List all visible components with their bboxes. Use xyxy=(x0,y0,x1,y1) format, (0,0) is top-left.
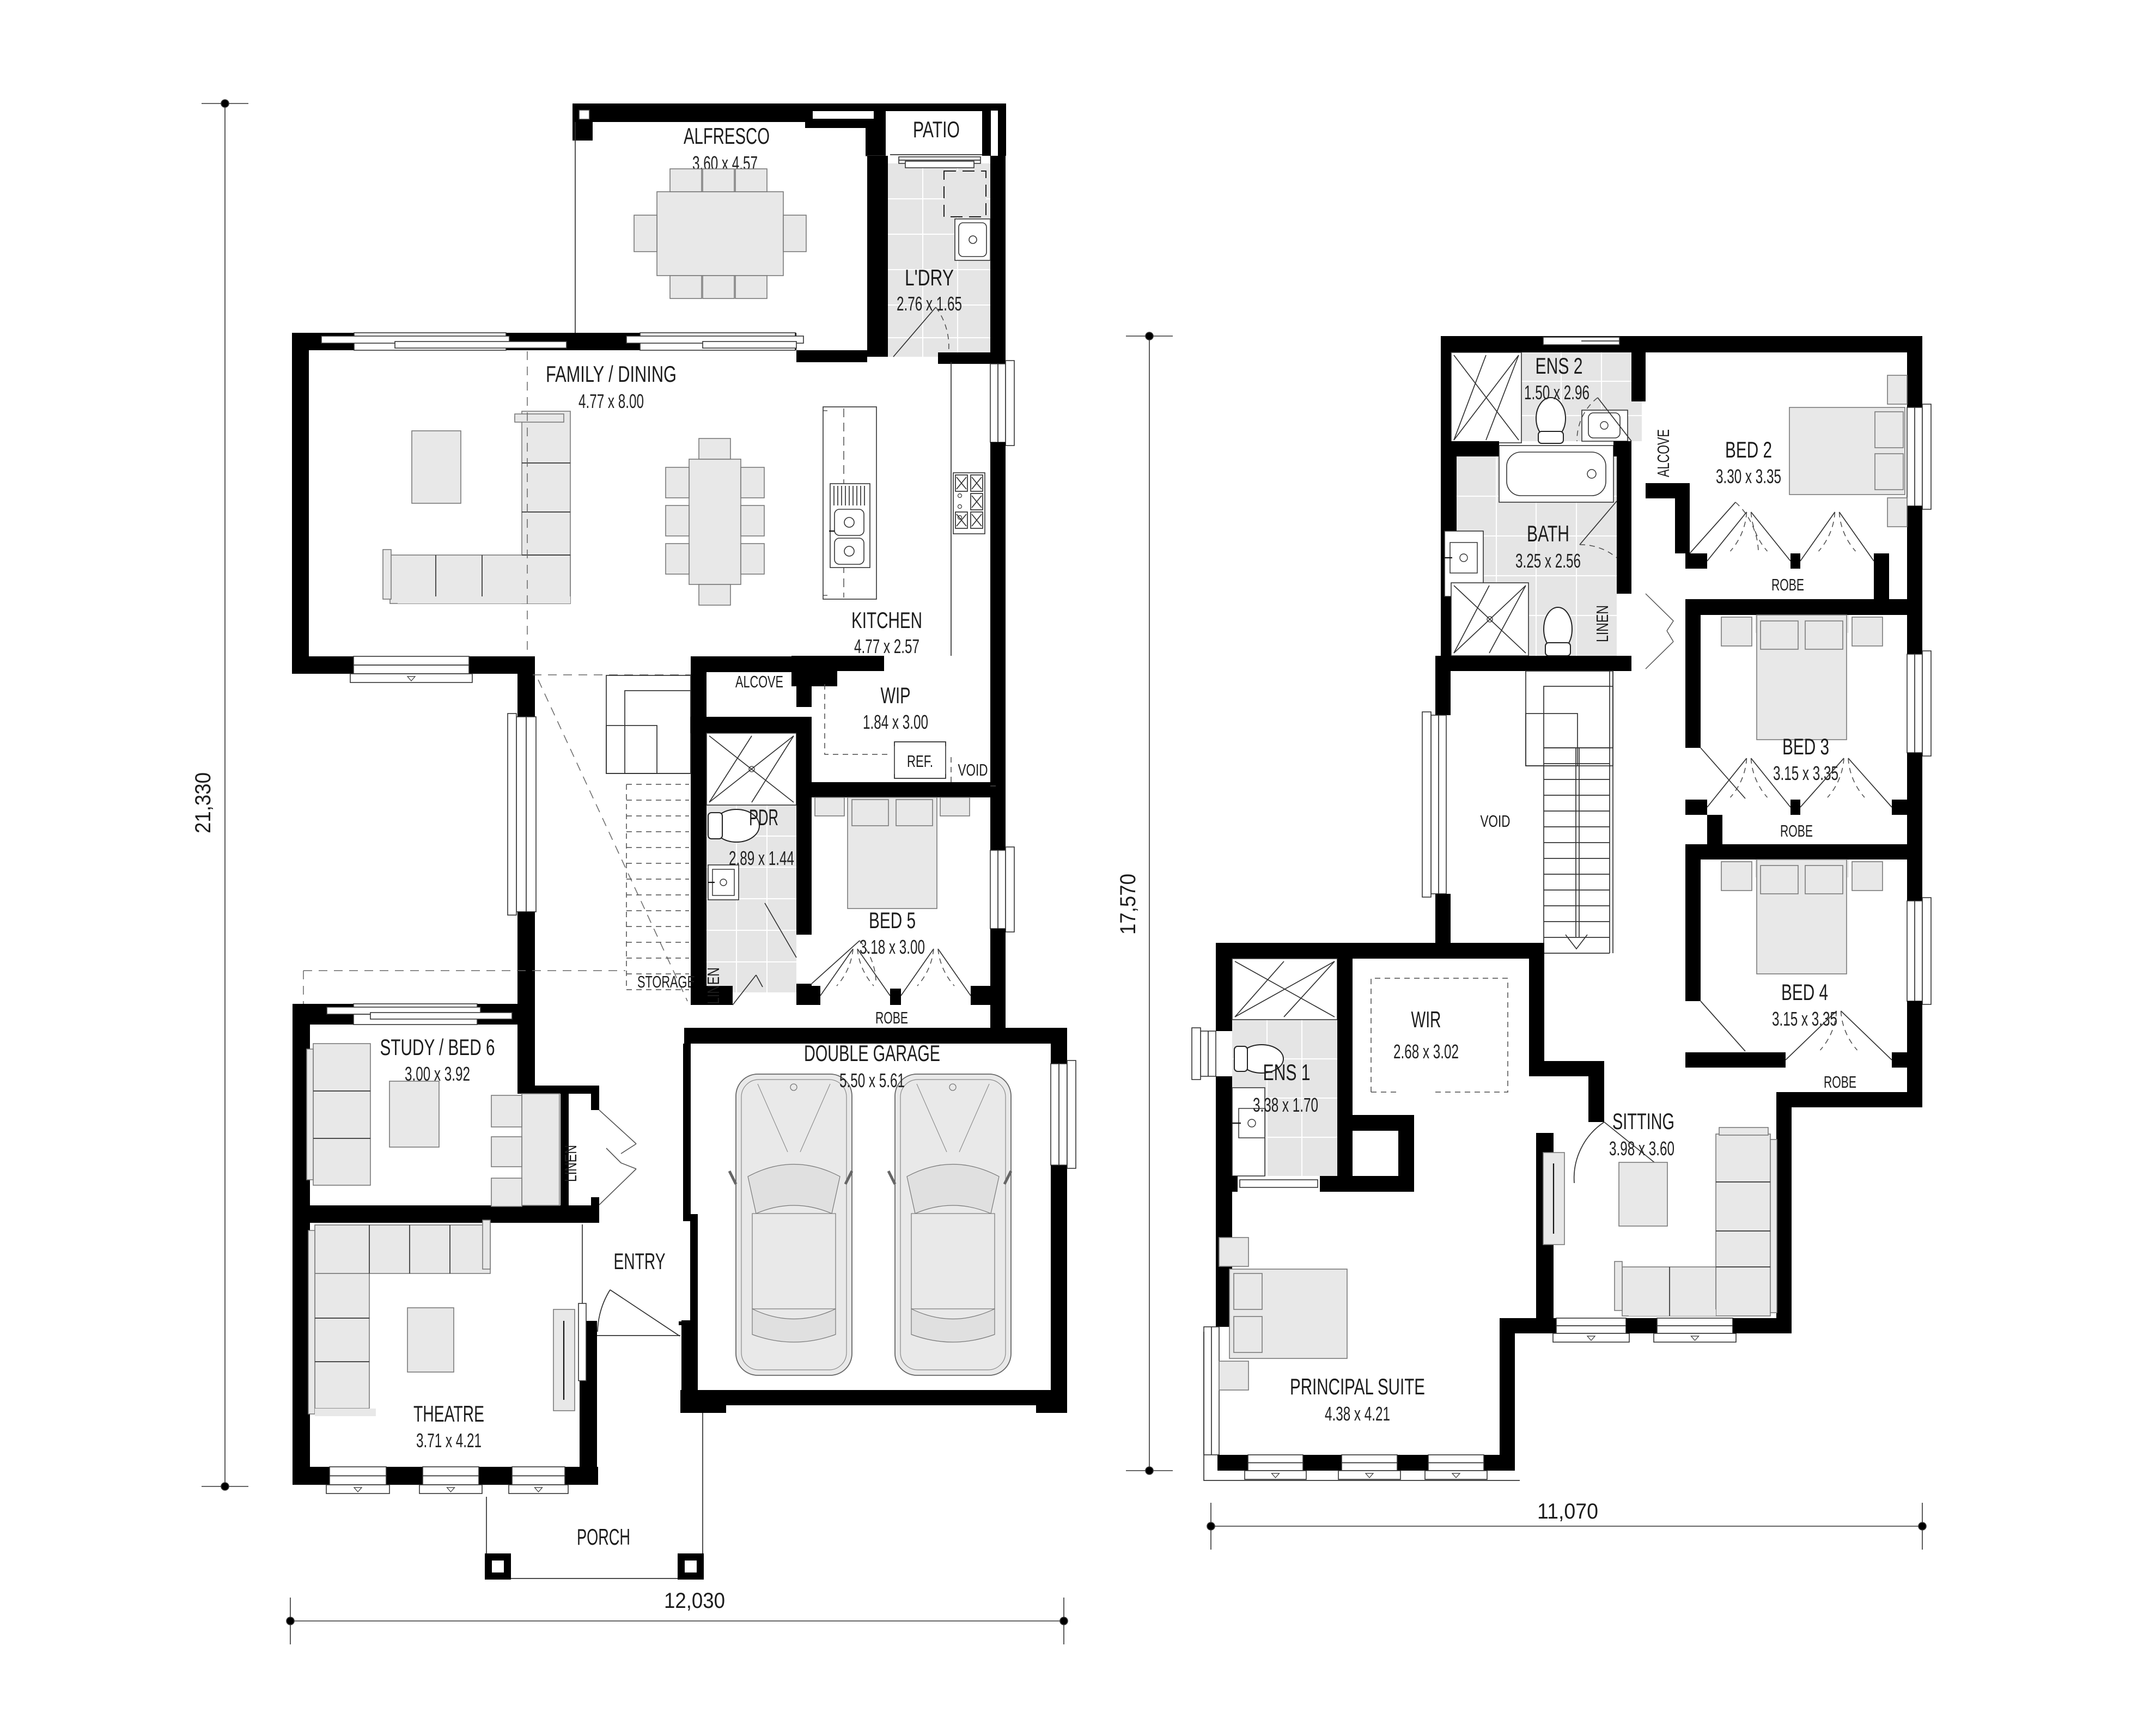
svg-text:4.38 x 4.21: 4.38 x 4.21 xyxy=(1325,1403,1390,1425)
svg-text:1.84 x 3.00: 1.84 x 3.00 xyxy=(863,711,928,733)
svg-text:17,570: 17,570 xyxy=(1116,874,1140,935)
svg-text:ALCOVE: ALCOVE xyxy=(1654,429,1673,477)
svg-text:ENS 1: ENS 1 xyxy=(1263,1059,1311,1085)
svg-text:2.89 x 1.44: 2.89 x 1.44 xyxy=(729,847,794,869)
svg-text:ALFRESCO: ALFRESCO xyxy=(684,123,770,149)
svg-text:L'DRY: L'DRY xyxy=(905,265,954,290)
svg-text:ROBE: ROBE xyxy=(1780,821,1813,840)
svg-text:THEATRE: THEATRE xyxy=(413,1401,484,1427)
svg-text:BED 5: BED 5 xyxy=(869,907,916,933)
svg-text:FAMILY / DINING: FAMILY / DINING xyxy=(546,361,677,387)
svg-text:BED 4: BED 4 xyxy=(1781,979,1828,1005)
svg-text:LINEN: LINEN xyxy=(704,967,723,1004)
svg-text:STUDY / BED 6: STUDY / BED 6 xyxy=(380,1034,495,1060)
svg-text:3.30 x 3.35: 3.30 x 3.35 xyxy=(1716,465,1781,487)
svg-text:LINEN: LINEN xyxy=(1593,605,1612,642)
svg-text:11,070: 11,070 xyxy=(1537,1500,1598,1523)
svg-text:LINEN: LINEN xyxy=(561,1145,580,1182)
svg-text:3.71 x 4.21: 3.71 x 4.21 xyxy=(416,1429,482,1452)
svg-text:BATH: BATH xyxy=(1527,521,1569,546)
svg-text:2.76 x 1.65: 2.76 x 1.65 xyxy=(897,292,962,315)
svg-text:ROBE: ROBE xyxy=(875,1008,908,1027)
svg-text:4.77 x 8.00: 4.77 x 8.00 xyxy=(578,390,644,412)
svg-text:2.68 x 3.02: 2.68 x 3.02 xyxy=(1393,1040,1459,1063)
svg-text:WIR: WIR xyxy=(1411,1007,1441,1032)
svg-text:STORAGE: STORAGE xyxy=(637,972,695,991)
svg-text:PRINCIPAL SUITE: PRINCIPAL SUITE xyxy=(1290,1374,1425,1399)
svg-text:PATIO: PATIO xyxy=(913,117,960,142)
svg-text:PDR: PDR xyxy=(749,804,778,830)
svg-text:KITCHEN: KITCHEN xyxy=(851,607,922,633)
svg-text:PORCH: PORCH xyxy=(577,1524,630,1550)
svg-text:5.50 x 5.61: 5.50 x 5.61 xyxy=(839,1069,905,1092)
svg-text:3.98 x 3.60: 3.98 x 3.60 xyxy=(1609,1137,1674,1160)
svg-text:12,030: 12,030 xyxy=(664,1589,725,1613)
svg-text:VOID: VOID xyxy=(958,760,988,779)
svg-text:ALCOVE: ALCOVE xyxy=(735,672,783,691)
svg-text:ROBE: ROBE xyxy=(1824,1072,1856,1092)
svg-text:ROBE: ROBE xyxy=(1771,575,1804,594)
svg-text:3.25 x 2.56: 3.25 x 2.56 xyxy=(1515,550,1581,572)
svg-text:3.38 x 1.70: 3.38 x 1.70 xyxy=(1253,1094,1318,1116)
svg-text:VOID: VOID xyxy=(1481,812,1511,831)
svg-text:3.18 x 3.00: 3.18 x 3.00 xyxy=(860,936,925,958)
svg-text:WIP: WIP xyxy=(881,682,911,708)
svg-text:21,330: 21,330 xyxy=(191,772,215,833)
svg-text:BED 3: BED 3 xyxy=(1782,734,1829,759)
svg-text:SITTING: SITTING xyxy=(1612,1108,1674,1134)
svg-text:BED 2: BED 2 xyxy=(1725,437,1772,462)
svg-text:ENTRY: ENTRY xyxy=(614,1248,666,1274)
svg-text:3.15 x 3.35: 3.15 x 3.35 xyxy=(1772,1008,1837,1030)
svg-text:1.50 x 2.96: 1.50 x 2.96 xyxy=(1524,381,1589,404)
svg-text:DOUBLE GARAGE: DOUBLE GARAGE xyxy=(804,1040,940,1066)
svg-text:REF.: REF. xyxy=(907,752,933,771)
svg-text:3.15 x 3.35: 3.15 x 3.35 xyxy=(1773,762,1838,784)
svg-text:ENS 2: ENS 2 xyxy=(1536,353,1583,379)
svg-text:4.77 x 2.57: 4.77 x 2.57 xyxy=(854,635,919,657)
